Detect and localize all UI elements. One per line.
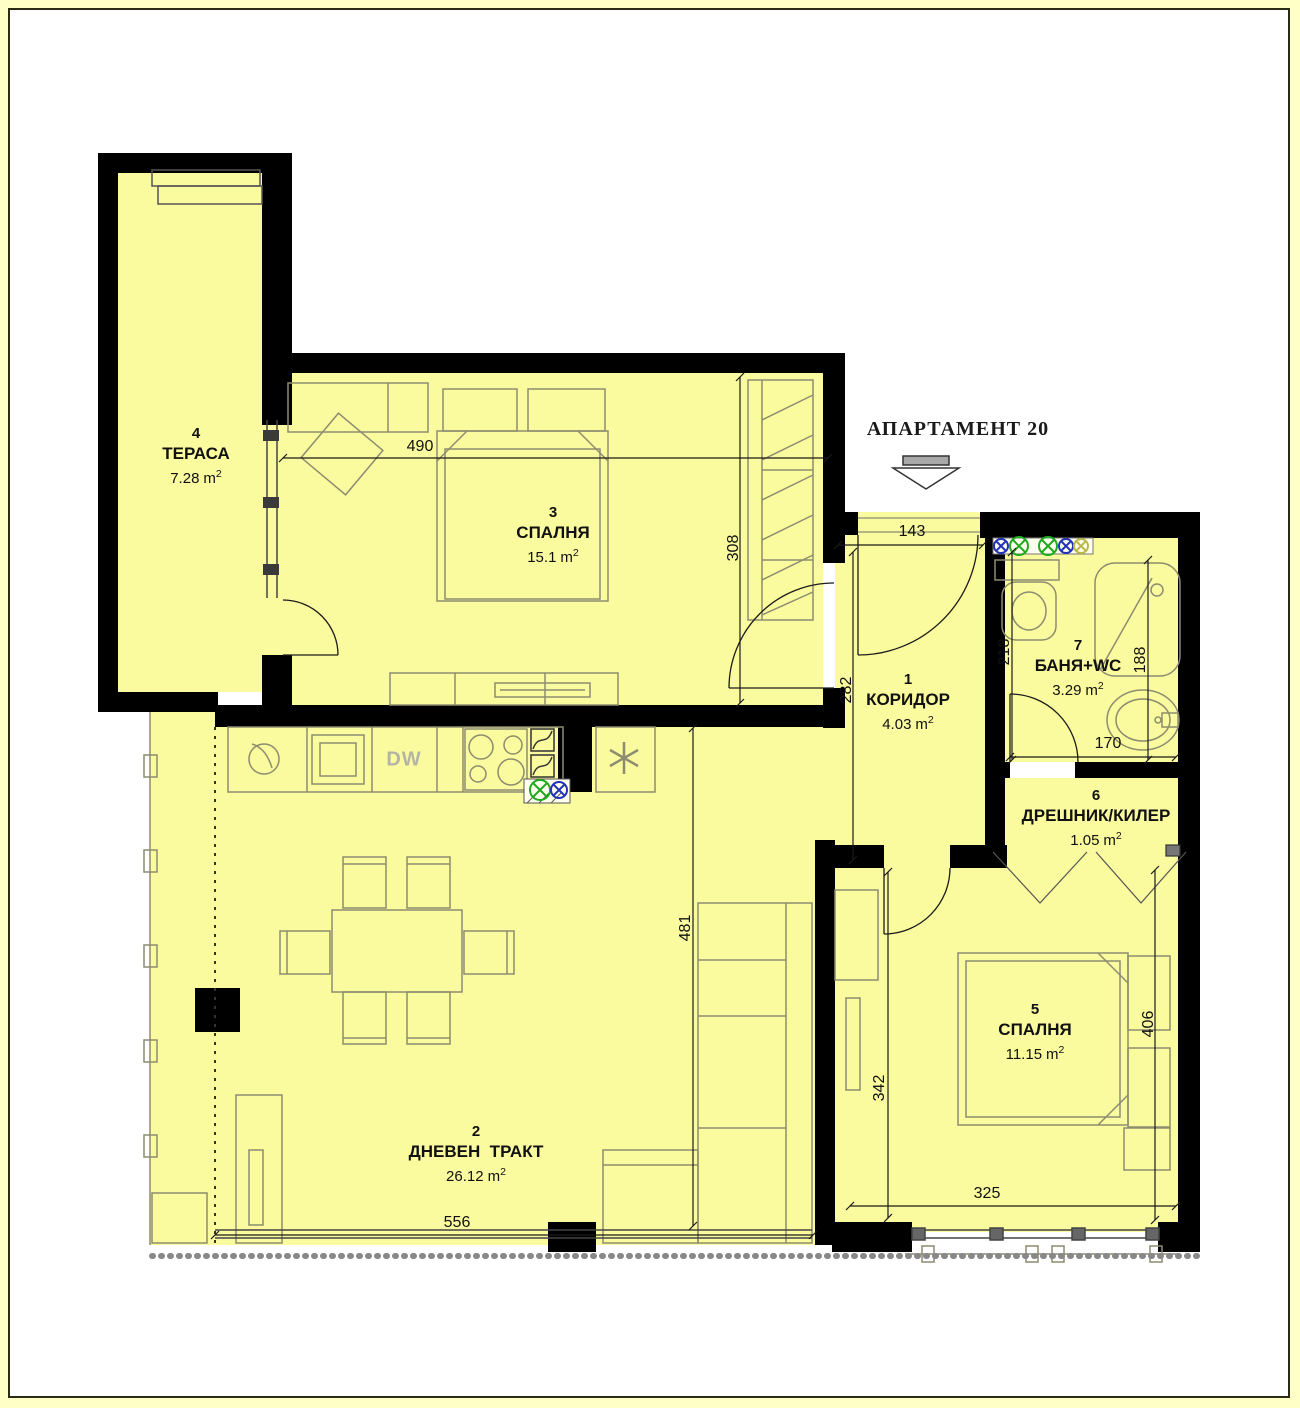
room-area: 26.12m2 bbox=[409, 1162, 544, 1187]
dim-bathroom-left-depth: 218 bbox=[996, 639, 1014, 666]
terrace-window bbox=[263, 420, 279, 598]
room-area: 3.29m2 bbox=[1035, 676, 1122, 701]
room-area: 1.05m2 bbox=[1022, 826, 1171, 851]
room-label-corridor: 1 КОРИДОР 4.03m2 bbox=[866, 670, 950, 735]
floor-plan-graphics bbox=[0, 0, 1300, 1408]
dim-bedroom5-depth: 406 bbox=[1140, 1011, 1158, 1038]
room-label-terrace: 4 ТЕРАСА 7.28m2 bbox=[162, 424, 230, 489]
room-name: СПАЛНЯ bbox=[516, 522, 589, 543]
terrace-planter bbox=[152, 170, 262, 204]
room-area: 7.28m2 bbox=[162, 464, 230, 489]
page-title: АПАРТАМЕНТ 20 bbox=[867, 418, 1049, 441]
dim-bedroom5-width: 325 bbox=[974, 1185, 1001, 1203]
room-number: 6 bbox=[1022, 786, 1171, 805]
floor-plan-page: АПАРТАМЕНТ 20 4 ТЕРАСА 7.28m2 3 СПАЛНЯ 1… bbox=[0, 0, 1300, 1408]
room-name: КОРИДОР bbox=[866, 689, 950, 710]
bathroom-door bbox=[1010, 694, 1078, 762]
room-number: 3 bbox=[516, 503, 589, 522]
dim-living-depth: 481 bbox=[677, 915, 695, 942]
bedroom5-door bbox=[884, 868, 950, 934]
bedroom3-door bbox=[729, 583, 834, 688]
room-number: 2 bbox=[409, 1122, 544, 1141]
floor-plan: АПАРТАМЕНТ 20 4 ТЕРАСА 7.28m2 3 СПАЛНЯ 1… bbox=[0, 0, 1300, 1408]
dim-bathroom-right-depth: 188 bbox=[1132, 647, 1150, 674]
room-area: 11.15m2 bbox=[998, 1040, 1071, 1065]
room-area: 15.1m2 bbox=[516, 543, 589, 568]
living-window bbox=[215, 1230, 812, 1238]
dim-living-width: 556 bbox=[444, 1214, 471, 1232]
dim-bathroom-width: 170 bbox=[1095, 735, 1122, 753]
room-number: 4 bbox=[162, 424, 230, 443]
room-number: 1 bbox=[866, 670, 950, 689]
room-label-living: 2 ДНЕВЕН ТРАКТ 26.12m2 bbox=[409, 1122, 544, 1187]
kitchen-vents bbox=[531, 729, 554, 777]
dim-bedroom5-inner-depth: 342 bbox=[871, 1075, 889, 1102]
room-name: СПАЛНЯ bbox=[998, 1019, 1071, 1040]
room-number: 5 bbox=[998, 1000, 1071, 1019]
riser-symbols bbox=[993, 537, 1093, 555]
dim-entrance-width: 143 bbox=[899, 523, 926, 541]
room-name: ТЕРАСА bbox=[162, 443, 230, 464]
kitchen-counter bbox=[228, 727, 655, 792]
room-name: БАНЯ+WC bbox=[1035, 655, 1122, 676]
fridge-icon bbox=[610, 742, 638, 774]
dim-bedroom3-depth: 308 bbox=[725, 535, 743, 562]
room-label-closet: 6 ДРЕШНИК/КИЛЕР 1.05m2 bbox=[1022, 786, 1171, 851]
dim-corridor-depth: 282 bbox=[838, 677, 856, 704]
room-label-bedroom5: 5 СПАЛНЯ 11.15m2 bbox=[998, 1000, 1071, 1065]
dishwasher-label: DW bbox=[386, 749, 421, 772]
room-area: 4.03m2 bbox=[866, 710, 950, 735]
room-label-bathroom: 7 БАНЯ+WC 3.29m2 bbox=[1035, 636, 1122, 701]
closet-doors bbox=[993, 845, 1186, 903]
terrace-door bbox=[283, 600, 338, 655]
room-name: ДРЕШНИК/КИЛЕР bbox=[1022, 805, 1171, 826]
room-number: 7 bbox=[1035, 636, 1122, 655]
room-label-bedroom3: 3 СПАЛНЯ 15.1m2 bbox=[516, 503, 589, 568]
dim-bedroom3-width: 490 bbox=[407, 438, 434, 456]
room-name: ДНЕВЕН ТРАКТ bbox=[409, 1141, 544, 1162]
north-entry-arrow-icon bbox=[893, 456, 959, 489]
kitchen-drain-symbols bbox=[524, 779, 570, 803]
